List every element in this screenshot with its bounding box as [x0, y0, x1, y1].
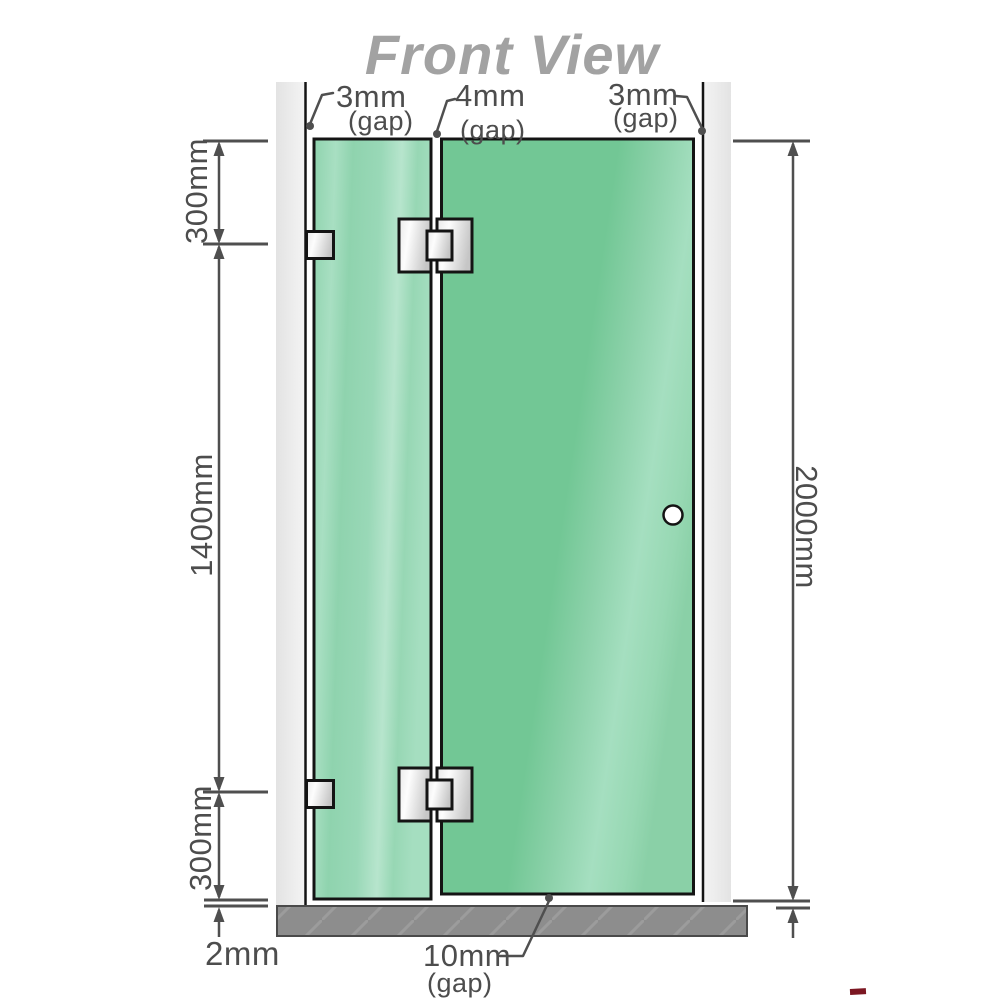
hinge-top — [399, 219, 472, 272]
wall-bracket-top — [307, 232, 334, 259]
hinge-top-knuckle — [427, 231, 452, 260]
gap-label-top-center: 4mm (gap) — [455, 78, 526, 145]
left-wall-channel — [276, 82, 304, 906]
gap-top-center-value: 4mm — [455, 78, 525, 113]
hinge-bottom — [399, 768, 472, 821]
gap-label-top-right: 3mm (gap) — [608, 77, 679, 133]
gap-top-right-note: (gap) — [613, 103, 679, 133]
floor-gap-label: 2mm — [205, 935, 280, 972]
gap-bottom-note: (gap) — [427, 968, 493, 998]
hinge-bottom-knuckle — [427, 780, 452, 809]
dimension-middle-section: 1400mm — [184, 453, 219, 577]
front-view-diagram: Front View 3mm (gap) 4mm (gap) 3mm (gap)… — [0, 0, 1000, 1000]
floor-base — [277, 906, 747, 936]
dimension-top-section: 300mm — [179, 138, 214, 244]
gap-label-bottom: 10mm (gap) — [423, 938, 511, 998]
wall-bracket-bottom — [307, 781, 334, 808]
dimension-overall-height: 2000mm — [789, 465, 824, 589]
gap-label-top-left: 3mm (gap) — [336, 79, 414, 136]
right-wall-channel — [704, 82, 731, 902]
watermark-fragment — [850, 988, 866, 995]
dimension-bottom-section: 300mm — [183, 785, 218, 891]
shower-screen-front-view-drawing: Front View 3mm (gap) 4mm (gap) 3mm (gap)… — [0, 0, 1000, 1000]
door-knob — [664, 506, 683, 525]
gap-top-left-note: (gap) — [348, 106, 414, 136]
door-glass-panel — [442, 139, 694, 894]
gap-top-center-note: (gap) — [460, 115, 526, 145]
